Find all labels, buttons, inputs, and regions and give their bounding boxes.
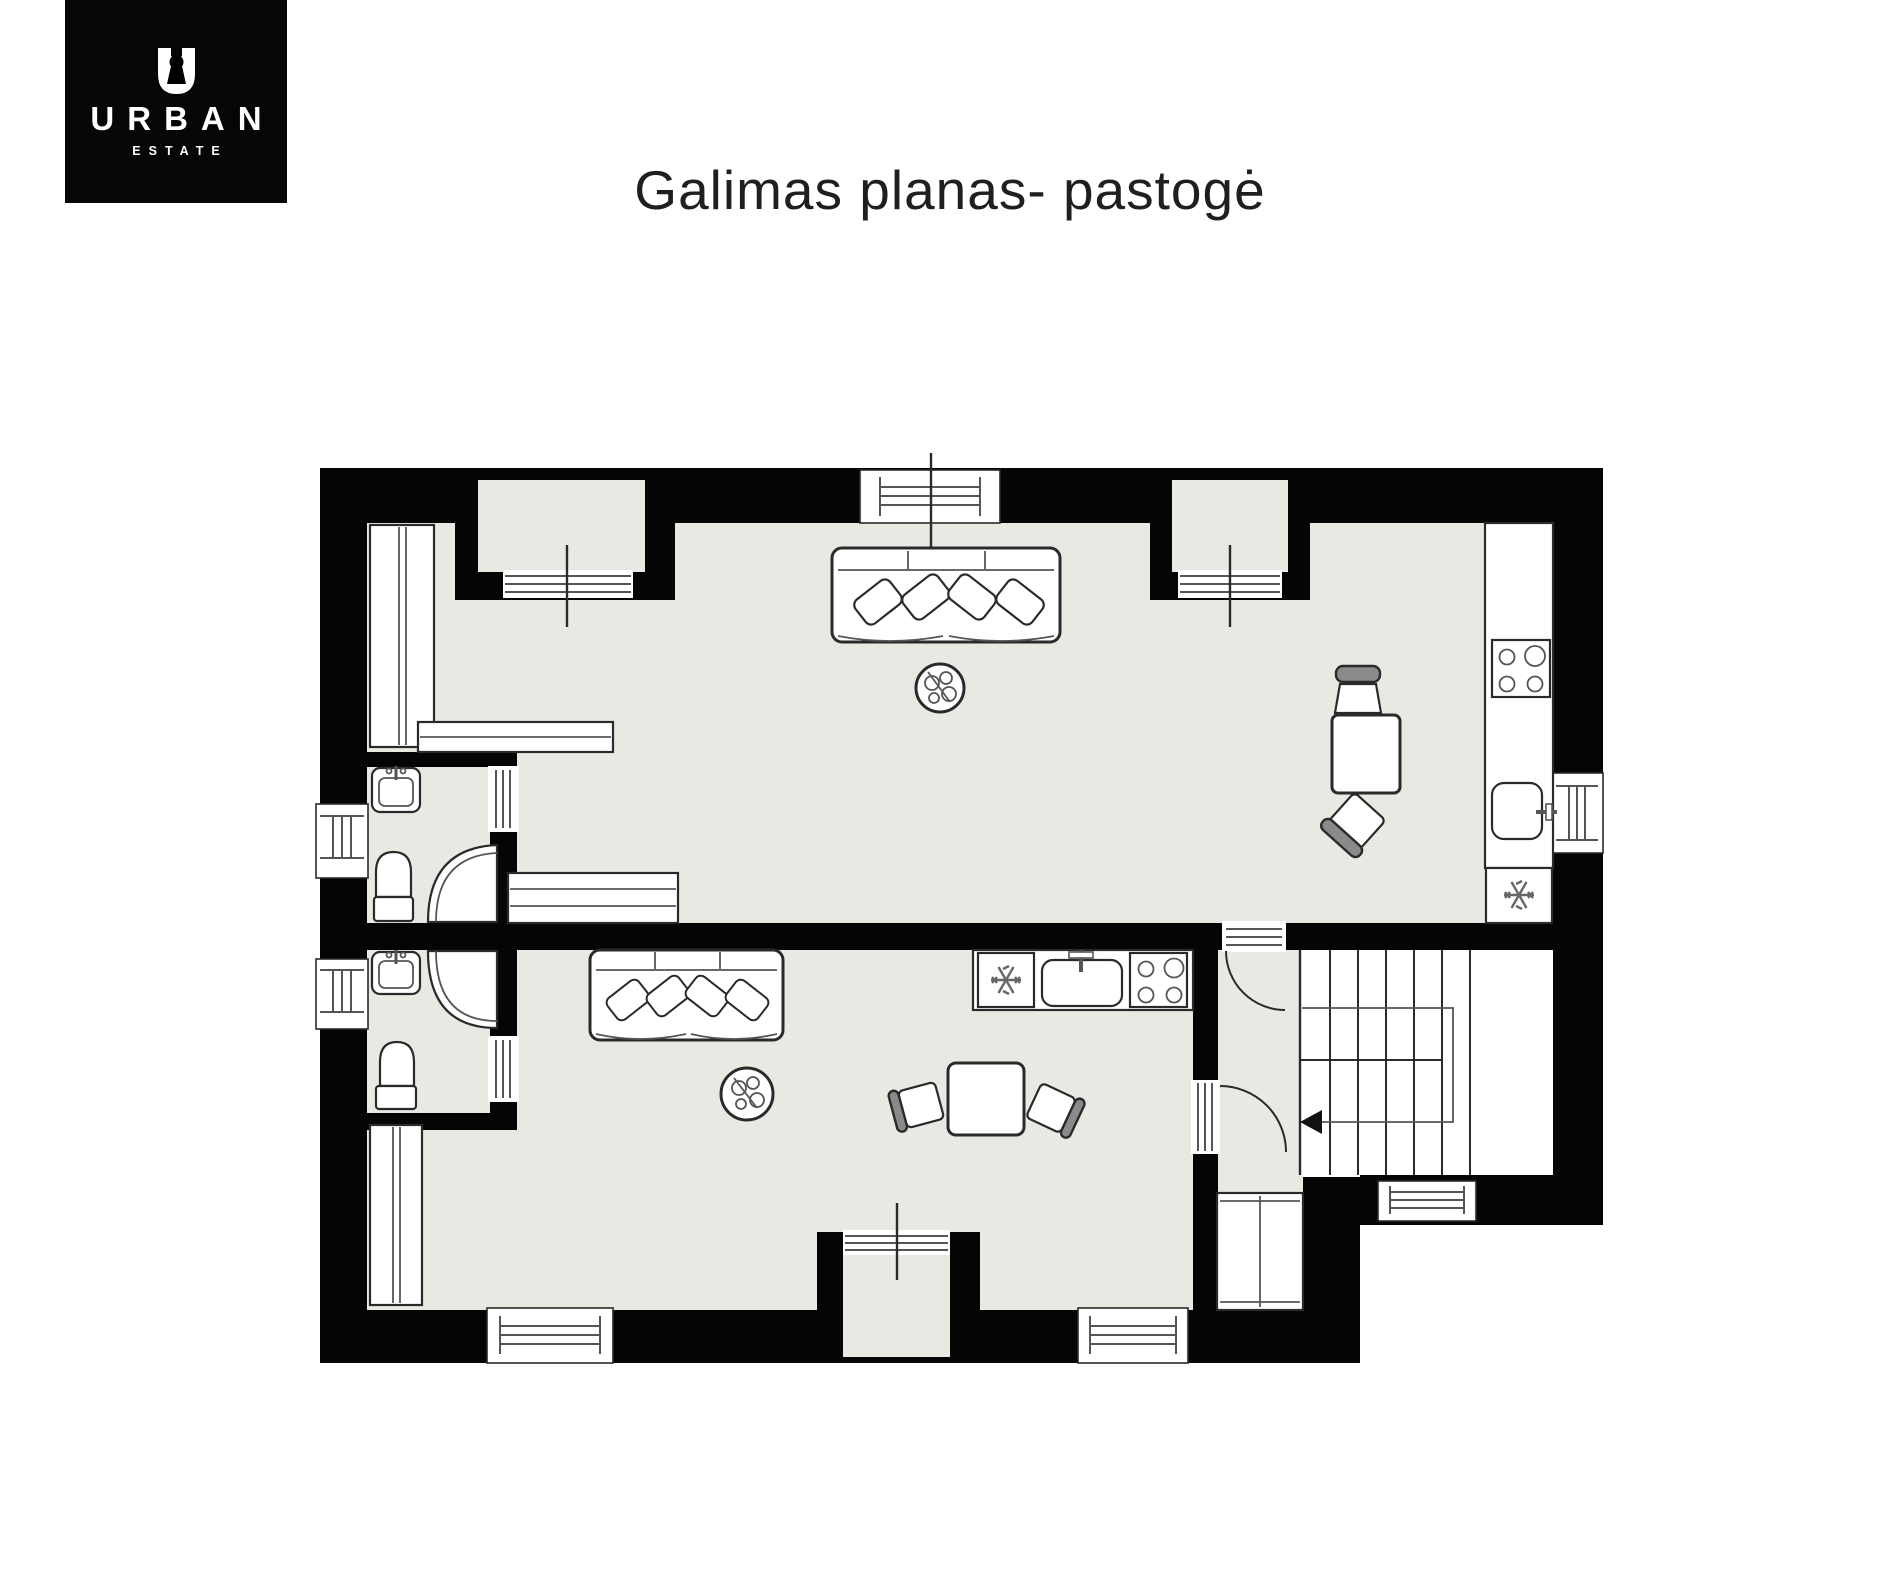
bench-bed — [508, 873, 678, 923]
toilet-icon — [376, 1042, 416, 1109]
dining-table — [948, 1063, 1024, 1135]
window-bottom-wall-left — [487, 1308, 613, 1363]
stove-icon — [1130, 953, 1187, 1007]
dormer-niche-top-left — [478, 480, 645, 572]
wardrobe — [370, 525, 434, 747]
sofa — [590, 950, 783, 1040]
window-left-wall-upper — [316, 804, 368, 878]
desk — [1332, 715, 1400, 793]
stove-icon — [1492, 640, 1550, 697]
window-bottom-wall-right — [1078, 1308, 1188, 1363]
entry-hall-floor — [1218, 950, 1303, 1193]
window-left-wall-lower — [316, 959, 368, 1029]
plant-icon — [721, 1068, 773, 1120]
toilet-icon — [374, 852, 413, 921]
kitchenette-lower — [973, 950, 1193, 1010]
floorplan-drawing — [0, 0, 1900, 1569]
window-right-wall — [1551, 773, 1603, 853]
stair-hall-wall-upper — [1193, 950, 1218, 1082]
kitchen-upper — [1485, 523, 1557, 923]
sideboard — [418, 722, 613, 752]
unit-divider-wall — [320, 923, 1553, 950]
dormer-jamb-bottom-left — [817, 1232, 843, 1363]
page: URBAN ESTATE Galimas planas- pastogė — [0, 0, 1900, 1569]
closet-side-wall — [1303, 1177, 1360, 1363]
staircase — [1300, 950, 1553, 1175]
door-bathroom-lower — [488, 1036, 519, 1102]
left-wall — [320, 468, 367, 1363]
wardrobe — [370, 1125, 422, 1305]
stair-hall-wall-lower — [1193, 1152, 1218, 1310]
dishwasher-snowflake-icon — [978, 953, 1034, 1007]
dormer-jamb-bottom-right — [950, 1232, 980, 1363]
window-stair-wall — [1378, 1181, 1476, 1221]
sofa — [832, 548, 1060, 642]
door-bathroom-upper — [488, 766, 519, 832]
bathroom-sink-icon — [372, 950, 420, 994]
bathroom-sink-icon — [372, 766, 420, 812]
fridge-snowflake-icon — [1486, 868, 1552, 923]
bathroom-upper-top-wall — [363, 752, 517, 767]
plant-icon — [916, 664, 964, 712]
entry-closet — [1217, 1193, 1303, 1310]
desk-chair-north — [1335, 666, 1381, 713]
